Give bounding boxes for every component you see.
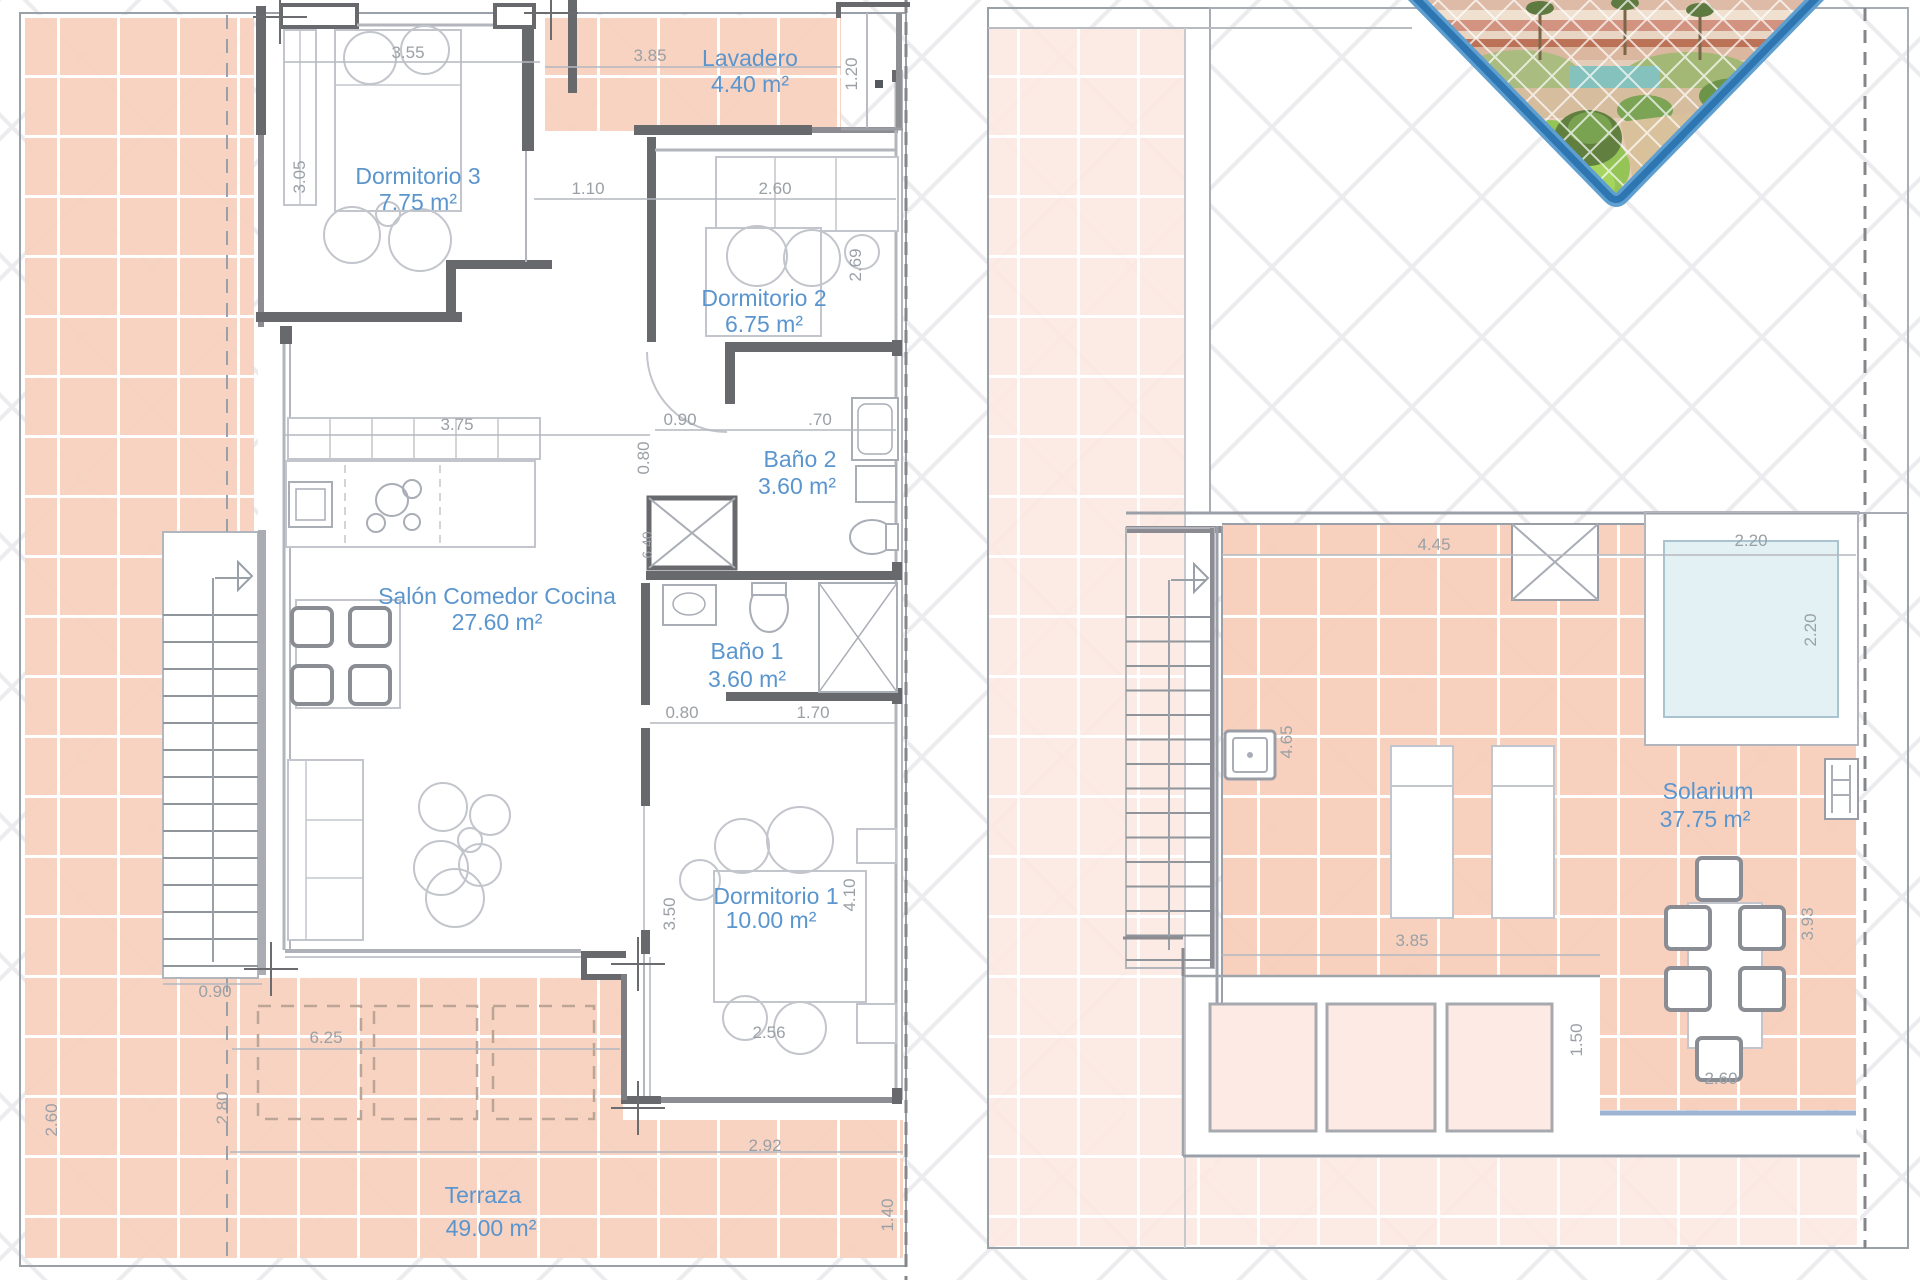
svg-text:1.20: 1.20 bbox=[842, 57, 861, 90]
svg-text:Dormitorio 2: Dormitorio 2 bbox=[701, 285, 826, 311]
svg-text:49.00 m²: 49.00 m² bbox=[446, 1215, 537, 1241]
svg-text:0.90: 0.90 bbox=[663, 410, 696, 429]
svg-text:6.40: 6.40 bbox=[639, 531, 655, 558]
svg-text:10.00 m²: 10.00 m² bbox=[726, 907, 817, 933]
svg-text:7.75 m²: 7.75 m² bbox=[379, 189, 457, 215]
svg-text:4.65: 4.65 bbox=[1277, 725, 1296, 758]
svg-text:3.85: 3.85 bbox=[1395, 931, 1428, 950]
svg-text:.70: .70 bbox=[808, 410, 832, 429]
svg-text:Baño 2: Baño 2 bbox=[764, 446, 837, 472]
svg-text:Lavadero: Lavadero bbox=[702, 45, 798, 71]
svg-text:6.75 m²: 6.75 m² bbox=[725, 311, 803, 337]
svg-text:1.40: 1.40 bbox=[878, 1198, 897, 1231]
svg-text:6.25: 6.25 bbox=[309, 1028, 342, 1047]
svg-text:2.60: 2.60 bbox=[758, 179, 791, 198]
svg-text:3.55: 3.55 bbox=[391, 43, 424, 62]
svg-text:2.80: 2.80 bbox=[213, 1091, 232, 1124]
svg-text:Solarium: Solarium bbox=[1663, 778, 1754, 804]
svg-text:0.90: 0.90 bbox=[198, 982, 231, 1001]
svg-text:4.40 m²: 4.40 m² bbox=[711, 71, 789, 97]
svg-text:2.60: 2.60 bbox=[42, 1103, 61, 1136]
svg-text:2.56: 2.56 bbox=[752, 1023, 785, 1042]
svg-text:3.60 m²: 3.60 m² bbox=[708, 666, 786, 692]
svg-text:3.85: 3.85 bbox=[633, 46, 666, 65]
svg-text:0.80: 0.80 bbox=[634, 441, 653, 474]
svg-text:3.93: 3.93 bbox=[1798, 907, 1817, 940]
svg-text:37.75 m²: 37.75 m² bbox=[1660, 806, 1751, 832]
svg-text:3.60 m²: 3.60 m² bbox=[758, 473, 836, 499]
svg-text:Salón Comedor Cocina: Salón Comedor Cocina bbox=[378, 583, 616, 609]
svg-text:1.70: 1.70 bbox=[796, 703, 829, 722]
svg-text:Dormitorio 1: Dormitorio 1 bbox=[713, 883, 838, 909]
svg-text:27.60 m²: 27.60 m² bbox=[452, 609, 543, 635]
svg-text:2.69: 2.69 bbox=[846, 248, 865, 281]
svg-text:3.50: 3.50 bbox=[660, 897, 679, 930]
svg-text:2.20: 2.20 bbox=[1734, 531, 1767, 550]
svg-text:2.20: 2.20 bbox=[1801, 613, 1820, 646]
svg-text:Dormitorio 3: Dormitorio 3 bbox=[355, 163, 480, 189]
svg-text:1.10: 1.10 bbox=[571, 179, 604, 198]
svg-text:Terraza: Terraza bbox=[445, 1182, 522, 1208]
svg-text:2.60: 2.60 bbox=[1704, 1069, 1737, 1088]
svg-text:4.45: 4.45 bbox=[1417, 535, 1450, 554]
svg-text:0.80: 0.80 bbox=[665, 703, 698, 722]
svg-text:4.10: 4.10 bbox=[840, 878, 859, 911]
svg-text:Baño 1: Baño 1 bbox=[711, 638, 784, 664]
svg-text:3.75: 3.75 bbox=[440, 415, 473, 434]
svg-text:1.50: 1.50 bbox=[1567, 1023, 1586, 1056]
svg-text:3.05: 3.05 bbox=[290, 160, 309, 193]
svg-text:2.92: 2.92 bbox=[748, 1136, 781, 1155]
